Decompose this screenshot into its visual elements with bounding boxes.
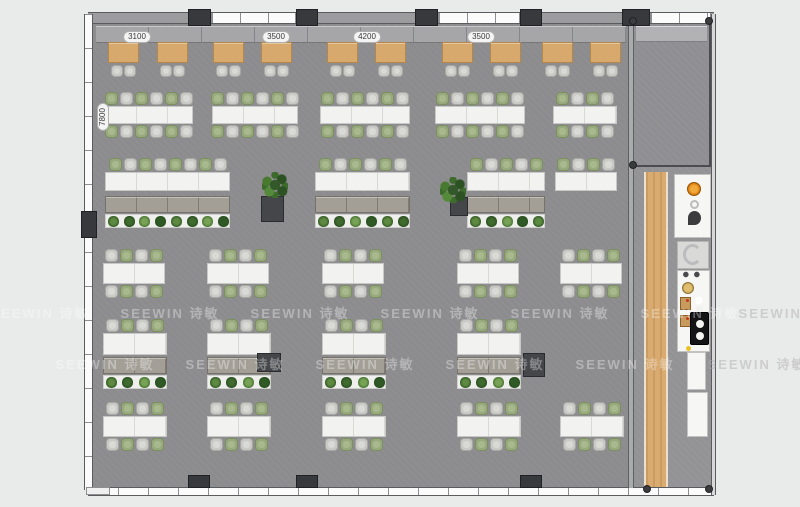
chair bbox=[135, 125, 148, 138]
workstation-desk bbox=[320, 106, 410, 124]
chair bbox=[121, 402, 134, 415]
chair bbox=[324, 249, 337, 262]
chair bbox=[165, 125, 178, 138]
chair bbox=[504, 285, 517, 298]
structural-column bbox=[296, 9, 318, 26]
plant-icon bbox=[218, 216, 229, 227]
chair bbox=[577, 249, 590, 262]
chair bbox=[493, 65, 505, 77]
dimension-label: 3100 bbox=[123, 31, 151, 43]
workstation-desk bbox=[467, 172, 545, 191]
chair bbox=[578, 438, 591, 451]
chair bbox=[369, 285, 382, 298]
plant-icon bbox=[122, 377, 133, 388]
chair bbox=[355, 319, 368, 332]
chair bbox=[120, 125, 133, 138]
chair bbox=[106, 319, 119, 332]
plant-icon bbox=[476, 377, 487, 388]
chair bbox=[254, 249, 267, 262]
kettle-icon bbox=[683, 244, 702, 265]
workstation-desk bbox=[207, 333, 271, 355]
chair bbox=[489, 285, 502, 298]
workstation-desk bbox=[207, 416, 271, 437]
chair bbox=[396, 125, 409, 138]
workstation-desk bbox=[105, 172, 230, 191]
chair bbox=[135, 285, 148, 298]
chair bbox=[593, 402, 606, 415]
chair bbox=[340, 402, 353, 415]
workstation-desk bbox=[560, 416, 624, 437]
plant-icon bbox=[460, 377, 471, 388]
plant-icon bbox=[139, 377, 150, 388]
chair bbox=[256, 125, 269, 138]
chair bbox=[505, 402, 518, 415]
workstation-desk bbox=[457, 263, 519, 284]
door bbox=[86, 487, 110, 495]
chair bbox=[340, 438, 353, 451]
structural-column bbox=[415, 9, 438, 26]
chair bbox=[505, 438, 518, 451]
chair bbox=[339, 249, 352, 262]
chair bbox=[459, 249, 472, 262]
chair bbox=[351, 92, 364, 105]
window-section bbox=[650, 13, 711, 23]
wall-joint-dot bbox=[643, 485, 651, 493]
meeting-room-credenza bbox=[636, 26, 707, 42]
chair bbox=[154, 158, 167, 171]
wall-section bbox=[318, 13, 415, 23]
chair bbox=[475, 438, 488, 451]
chair bbox=[460, 402, 473, 415]
chair bbox=[556, 92, 569, 105]
chair bbox=[445, 65, 457, 77]
storage-cabinet bbox=[315, 196, 410, 213]
cabinet bbox=[687, 352, 706, 390]
meeting-table bbox=[590, 42, 621, 63]
structural-column bbox=[188, 9, 211, 26]
chair bbox=[271, 125, 284, 138]
chair bbox=[106, 402, 119, 415]
chair bbox=[354, 285, 367, 298]
meeting-table bbox=[327, 42, 358, 63]
planter-box bbox=[315, 214, 410, 228]
meeting-table bbox=[261, 42, 292, 63]
chair bbox=[571, 92, 584, 105]
chair bbox=[336, 92, 349, 105]
plant-icon bbox=[202, 216, 213, 227]
chair bbox=[562, 285, 575, 298]
chair bbox=[210, 402, 223, 415]
workstation-desk bbox=[207, 263, 269, 284]
wall-section bbox=[542, 13, 622, 23]
chair bbox=[436, 125, 449, 138]
plant-icon bbox=[226, 377, 237, 388]
sink-bowl-icon bbox=[687, 182, 701, 196]
watermark: SEEWIN 诗敏 bbox=[121, 303, 220, 319]
watermark: SEEWIN 诗敏 bbox=[641, 303, 740, 319]
wood-walkway bbox=[644, 172, 668, 487]
structural-column bbox=[188, 475, 210, 488]
chair bbox=[466, 92, 479, 105]
dimension-label: 3500 bbox=[467, 31, 495, 43]
chair bbox=[381, 92, 394, 105]
chair bbox=[496, 92, 509, 105]
planter-box bbox=[103, 375, 167, 389]
chair bbox=[225, 402, 238, 415]
plant-icon bbox=[341, 377, 352, 388]
chair bbox=[475, 402, 488, 415]
watermark: SEEWIN 诗敏 bbox=[316, 354, 415, 370]
chair bbox=[240, 402, 253, 415]
plant-icon bbox=[106, 377, 117, 388]
chair bbox=[321, 125, 334, 138]
workstation-desk bbox=[435, 106, 525, 124]
workstation-desk bbox=[322, 263, 384, 284]
watermark: SEEWIN 诗敏 bbox=[0, 303, 89, 319]
workstation-desk bbox=[457, 416, 521, 437]
chair bbox=[105, 285, 118, 298]
chair bbox=[490, 438, 503, 451]
storage-cabinet bbox=[467, 196, 545, 213]
chair bbox=[277, 65, 289, 77]
chair bbox=[571, 125, 584, 138]
dimension-label: 3500 bbox=[262, 31, 290, 43]
chair bbox=[214, 158, 227, 171]
chair bbox=[504, 249, 517, 262]
chair bbox=[490, 319, 503, 332]
chair bbox=[286, 92, 299, 105]
chair bbox=[506, 65, 518, 77]
chair bbox=[556, 125, 569, 138]
chair bbox=[370, 402, 383, 415]
chair bbox=[511, 92, 524, 105]
plant-icon bbox=[398, 216, 409, 227]
chair bbox=[496, 125, 509, 138]
plant-icon bbox=[517, 216, 528, 227]
chair bbox=[381, 125, 394, 138]
planter-box bbox=[105, 214, 230, 228]
chair bbox=[169, 158, 182, 171]
chair bbox=[240, 438, 253, 451]
plant-icon bbox=[108, 216, 119, 227]
chair bbox=[490, 402, 503, 415]
chair bbox=[577, 285, 590, 298]
chair bbox=[511, 125, 524, 138]
chair bbox=[485, 158, 498, 171]
chair bbox=[173, 65, 185, 77]
plant-icon bbox=[382, 216, 393, 227]
plant-icon bbox=[533, 216, 544, 227]
watermark: SEEWIN 诗敏 bbox=[708, 354, 800, 370]
chair bbox=[489, 249, 502, 262]
left-window-wall bbox=[84, 14, 93, 490]
chair bbox=[563, 438, 576, 451]
chair bbox=[151, 438, 164, 451]
workstation-desk bbox=[322, 333, 386, 355]
chair bbox=[500, 158, 513, 171]
storage-cabinet bbox=[105, 196, 230, 213]
chair bbox=[325, 402, 338, 415]
chair bbox=[264, 65, 276, 77]
chair bbox=[379, 158, 392, 171]
meeting-table bbox=[108, 42, 139, 63]
plant-icon bbox=[318, 216, 329, 227]
plant-icon bbox=[366, 216, 377, 227]
chair bbox=[396, 92, 409, 105]
chair bbox=[601, 92, 614, 105]
chair bbox=[111, 65, 123, 77]
chair bbox=[255, 402, 268, 415]
chair bbox=[211, 92, 224, 105]
chair bbox=[460, 438, 473, 451]
divider-wall bbox=[628, 18, 634, 488]
chair bbox=[224, 249, 237, 262]
chair bbox=[607, 249, 620, 262]
chair bbox=[241, 92, 254, 105]
chair bbox=[139, 158, 152, 171]
watermark: SEEWIN 诗敏 bbox=[186, 354, 285, 370]
workstation-desk bbox=[555, 172, 617, 191]
chair bbox=[211, 125, 224, 138]
chair bbox=[180, 125, 193, 138]
potted-plant-icon bbox=[440, 177, 466, 203]
chair bbox=[481, 125, 494, 138]
workstation-desk bbox=[553, 106, 617, 124]
chair bbox=[602, 158, 615, 171]
wall-joint-dot bbox=[705, 485, 713, 493]
chair bbox=[593, 438, 606, 451]
structural-column bbox=[296, 475, 318, 488]
chair bbox=[324, 285, 337, 298]
chair bbox=[470, 158, 483, 171]
chair bbox=[592, 285, 605, 298]
chair bbox=[150, 249, 163, 262]
chair bbox=[254, 285, 267, 298]
chair bbox=[271, 92, 284, 105]
chair bbox=[106, 438, 119, 451]
bottom-window-wall bbox=[88, 487, 714, 496]
chair bbox=[586, 92, 599, 105]
chair bbox=[557, 158, 570, 171]
chair bbox=[226, 125, 239, 138]
chair bbox=[239, 285, 252, 298]
chair bbox=[226, 92, 239, 105]
chair bbox=[241, 125, 254, 138]
plant-icon bbox=[210, 377, 221, 388]
chair bbox=[105, 249, 118, 262]
plant-icon bbox=[259, 377, 270, 388]
chair bbox=[369, 249, 382, 262]
plant-icon bbox=[334, 216, 345, 227]
structural-column bbox=[81, 211, 97, 238]
meeting-room bbox=[632, 20, 711, 167]
meeting-table bbox=[157, 42, 188, 63]
chair bbox=[587, 158, 600, 171]
chair bbox=[150, 92, 163, 105]
chair bbox=[545, 65, 557, 77]
plant-icon bbox=[124, 216, 135, 227]
plant-icon bbox=[486, 216, 497, 227]
chair bbox=[239, 249, 252, 262]
knob-icon bbox=[686, 346, 691, 351]
chair bbox=[451, 92, 464, 105]
chair bbox=[592, 249, 605, 262]
chair bbox=[474, 249, 487, 262]
chair bbox=[321, 92, 334, 105]
watermark: SEEWIN 诗敏 bbox=[511, 303, 610, 319]
watermark: SEEWIN 诗敏 bbox=[56, 354, 155, 370]
chair bbox=[607, 285, 620, 298]
chair bbox=[216, 65, 228, 77]
chair bbox=[601, 125, 614, 138]
chair bbox=[150, 285, 163, 298]
chair bbox=[391, 65, 403, 77]
watermark: SEEWIN 诗敏 bbox=[576, 354, 675, 370]
structural-block bbox=[261, 196, 284, 222]
chair bbox=[135, 249, 148, 262]
plant-icon bbox=[350, 216, 361, 227]
plant-icon bbox=[155, 216, 166, 227]
meeting-table bbox=[490, 42, 521, 63]
chair bbox=[378, 65, 390, 77]
chair bbox=[608, 438, 621, 451]
chair bbox=[451, 125, 464, 138]
chair bbox=[364, 158, 377, 171]
cabinet bbox=[687, 392, 708, 437]
plant-icon bbox=[509, 377, 520, 388]
chair bbox=[325, 438, 338, 451]
planter-box bbox=[207, 375, 271, 389]
chair bbox=[136, 438, 149, 451]
meeting-table bbox=[442, 42, 473, 63]
chair bbox=[606, 65, 618, 77]
watermark: SEEWIN 诗敏 bbox=[446, 354, 545, 370]
window-section bbox=[211, 13, 296, 23]
chair bbox=[229, 65, 241, 77]
chair bbox=[209, 249, 222, 262]
chair bbox=[120, 285, 133, 298]
workstation-desk bbox=[212, 106, 298, 124]
structural-column bbox=[520, 9, 542, 26]
chair bbox=[608, 402, 621, 415]
wall-joint-dot bbox=[629, 17, 637, 25]
chair bbox=[481, 92, 494, 105]
workstation-desk bbox=[103, 333, 167, 355]
plant-icon bbox=[374, 377, 385, 388]
chair bbox=[336, 125, 349, 138]
taps-icon bbox=[681, 271, 703, 278]
workstation-desk bbox=[322, 416, 386, 437]
plant-icon bbox=[171, 216, 182, 227]
chair bbox=[563, 402, 576, 415]
wall-joint-dot bbox=[705, 17, 713, 25]
planter-box bbox=[467, 214, 545, 228]
meeting-table bbox=[213, 42, 244, 63]
chair bbox=[343, 65, 355, 77]
workstation-desk bbox=[560, 263, 622, 284]
potted-plant-icon bbox=[262, 172, 288, 198]
chair bbox=[180, 92, 193, 105]
chair bbox=[354, 249, 367, 262]
chair bbox=[165, 92, 178, 105]
chair bbox=[572, 158, 585, 171]
chair bbox=[319, 158, 332, 171]
chair bbox=[458, 65, 470, 77]
chair bbox=[339, 285, 352, 298]
chair bbox=[349, 158, 362, 171]
floor-plan-canvas: 3100 3500 4200 3500 7800 SEEWIN 诗敏SEEWIN… bbox=[0, 0, 800, 507]
chair bbox=[578, 402, 591, 415]
watermark: SEEWIN 诗敏 bbox=[739, 303, 800, 319]
meeting-table bbox=[542, 42, 573, 63]
chair bbox=[150, 125, 163, 138]
dimension-label: 4200 bbox=[353, 31, 381, 43]
chair bbox=[370, 438, 383, 451]
chair bbox=[124, 65, 136, 77]
chair bbox=[256, 92, 269, 105]
chair bbox=[394, 158, 407, 171]
drain-icon bbox=[690, 200, 699, 209]
chair bbox=[593, 65, 605, 77]
planter-box bbox=[322, 375, 386, 389]
chair bbox=[184, 158, 197, 171]
chair bbox=[225, 438, 238, 451]
plant-icon bbox=[358, 377, 369, 388]
chair bbox=[224, 285, 237, 298]
wall-section bbox=[93, 13, 188, 23]
plant-icon bbox=[139, 216, 150, 227]
chair bbox=[120, 249, 133, 262]
chair bbox=[210, 438, 223, 451]
planter-box bbox=[457, 375, 521, 389]
workstation-desk bbox=[457, 333, 521, 355]
chair bbox=[355, 402, 368, 415]
chair bbox=[515, 158, 528, 171]
chair bbox=[355, 438, 368, 451]
plant-icon bbox=[187, 216, 198, 227]
plant-icon bbox=[502, 216, 513, 227]
chair bbox=[151, 402, 164, 415]
chair bbox=[286, 125, 299, 138]
plant-icon bbox=[493, 377, 504, 388]
plant-icon bbox=[325, 377, 336, 388]
chair bbox=[436, 92, 449, 105]
chair bbox=[334, 158, 347, 171]
chair bbox=[199, 158, 212, 171]
chair bbox=[121, 438, 134, 451]
chair bbox=[135, 92, 148, 105]
window-section bbox=[438, 13, 520, 23]
chair bbox=[209, 285, 222, 298]
chair bbox=[586, 125, 599, 138]
chair bbox=[225, 319, 238, 332]
dimension-label-vertical: 7800 bbox=[97, 103, 109, 131]
workstation-desk bbox=[103, 263, 165, 284]
chair bbox=[530, 158, 543, 171]
chair bbox=[109, 158, 122, 171]
wall-joint-dot bbox=[629, 161, 637, 169]
chair bbox=[160, 65, 172, 77]
plant-icon bbox=[470, 216, 481, 227]
plant-icon bbox=[155, 377, 166, 388]
top-wall bbox=[88, 12, 714, 24]
bowl-icon bbox=[682, 282, 694, 294]
meeting-table bbox=[375, 42, 406, 63]
chair bbox=[474, 285, 487, 298]
chair bbox=[459, 285, 472, 298]
right-wall bbox=[711, 14, 716, 495]
chair bbox=[366, 125, 379, 138]
